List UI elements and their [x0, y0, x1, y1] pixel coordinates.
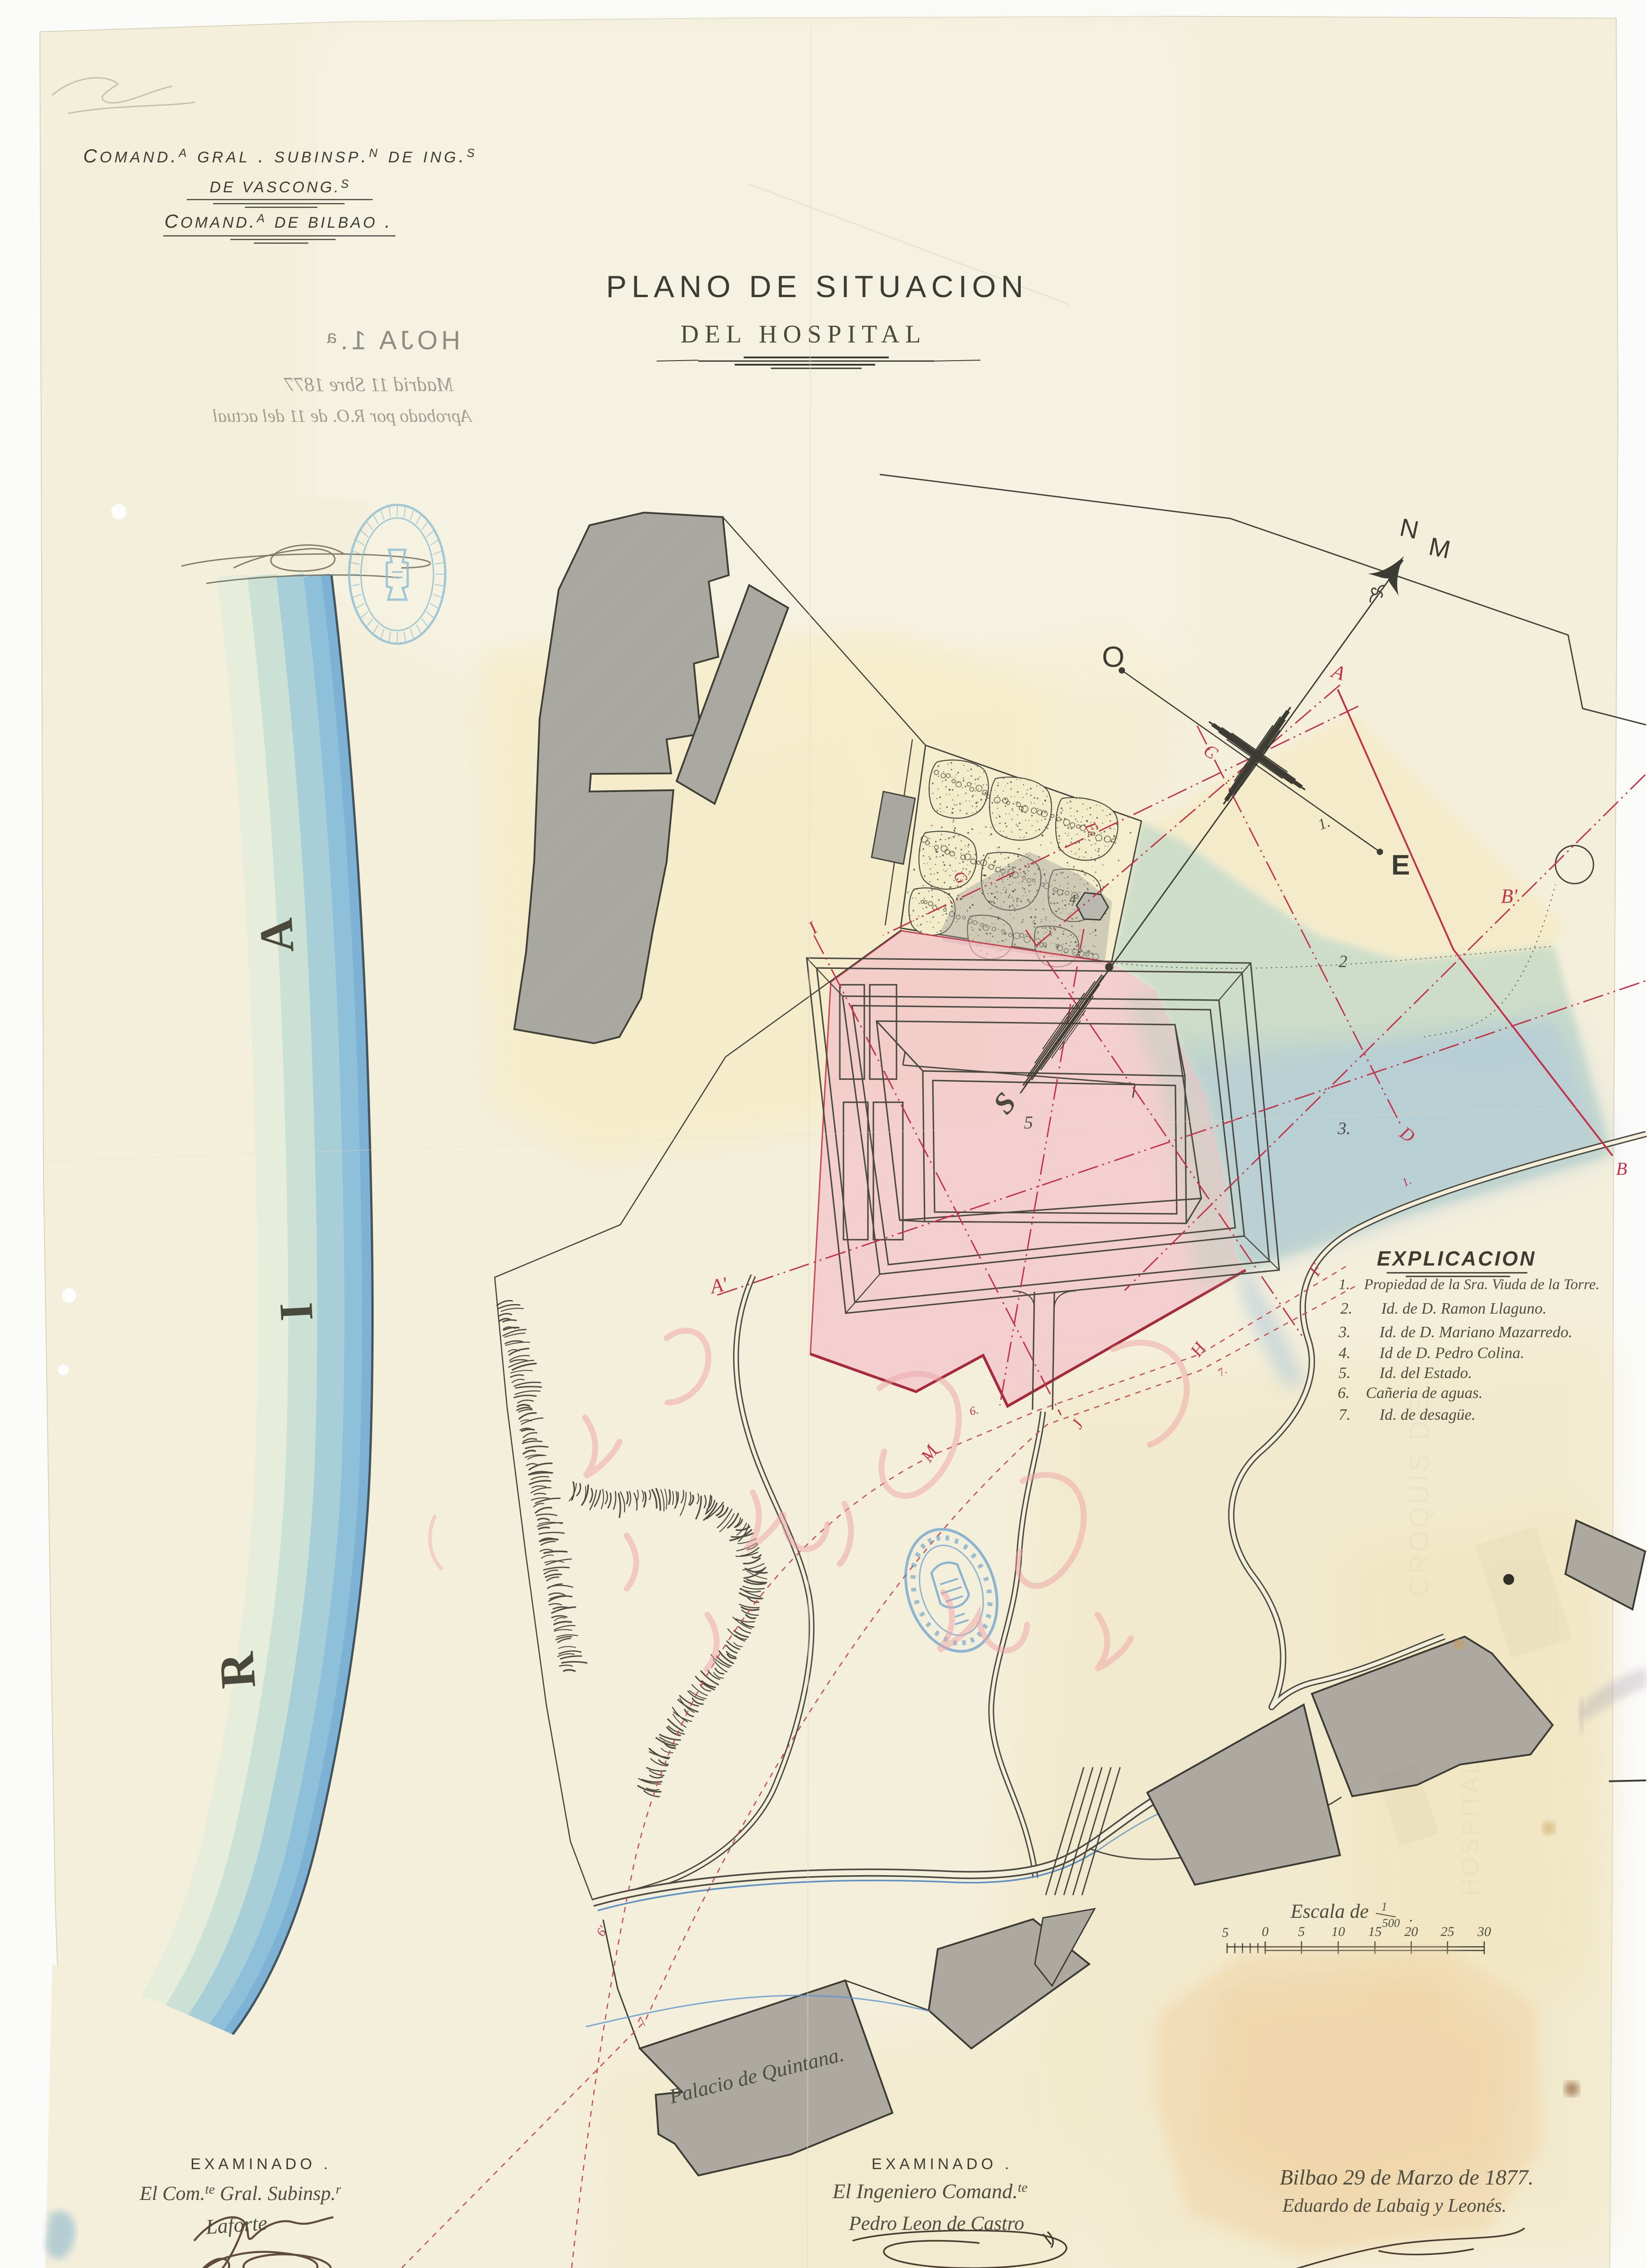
svg-text:El Com.te Gral. Subinsp.r: El Com.te Gral. Subinsp.r: [139, 2182, 341, 2204]
svg-text:15: 15: [1368, 1924, 1382, 1939]
svg-text:PLANO DE SITUACION: PLANO DE SITUACION: [606, 269, 1028, 304]
svg-text:1.: 1.: [1339, 1276, 1350, 1293]
svg-text:Laforte: Laforte: [205, 2211, 268, 2239]
svg-text:EXAMINADO .: EXAMINADO .: [190, 2156, 331, 2173]
svg-text:B': B': [1501, 885, 1518, 907]
svg-text:Id. de D. Ramon Llaguno.: Id. de D. Ramon Llaguno.: [1381, 1300, 1547, 1317]
svg-text:Escala de: Escala de: [1290, 1900, 1369, 1922]
svg-text:20: 20: [1404, 1924, 1418, 1939]
svg-text:EXPLICACION: EXPLICACION: [1377, 1247, 1536, 1270]
svg-text:5.: 5.: [1339, 1364, 1350, 1382]
svg-text:5: 5: [1298, 1924, 1305, 1939]
svg-text:6.: 6.: [1338, 1384, 1350, 1402]
svg-text:30: 30: [1477, 1924, 1491, 1939]
svg-text:3.: 3.: [1337, 1119, 1351, 1138]
svg-text:2.: 2.: [1340, 1300, 1352, 1317]
svg-text:El Ingeniero Comand.te: El Ingeniero Comand.te: [832, 2180, 1028, 2203]
svg-text:0: 0: [1262, 1924, 1269, 1939]
svg-text:EXAMINADO .: EXAMINADO .: [872, 2156, 1013, 2173]
svg-text:.: .: [1409, 1908, 1413, 1925]
svg-text:B: B: [1616, 1158, 1627, 1179]
svg-text:Id. de D. Mariano Mazarredo.: Id. de D. Mariano Mazarredo.: [1379, 1323, 1572, 1341]
svg-text:7.: 7.: [1339, 1406, 1350, 1423]
svg-text:COMAND.A DE BILBAO .: COMAND.A DE BILBAO .: [165, 210, 393, 232]
svg-text:Madrid 11 Sbre 1877: Madrid 11 Sbre 1877: [283, 373, 454, 396]
svg-text:3.: 3.: [1338, 1323, 1350, 1341]
svg-text:HOSPITAL: HOSPITAL: [1457, 1759, 1484, 1896]
svg-text:4.: 4.: [1339, 1344, 1350, 1362]
svg-text:DE VASCONG.S: DE VASCONG.S: [210, 177, 351, 196]
svg-text:10: 10: [1331, 1924, 1345, 1939]
svg-text:R: R: [208, 1650, 266, 1690]
svg-text:I: I: [269, 1301, 323, 1322]
svg-text:DEL HOSPITAL: DEL HOSPITAL: [681, 320, 927, 348]
svg-text:1: 1: [1381, 1900, 1387, 1913]
svg-text:Aprobado por R.O. de 11 del ac: Aprobado por R.O. de 11 del actual: [213, 406, 473, 426]
svg-text:25: 25: [1441, 1924, 1454, 1939]
svg-text:Id de D. Pedro Colina.: Id de D. Pedro Colina.: [1379, 1344, 1525, 1362]
svg-text:5: 5: [1024, 1112, 1033, 1133]
svg-text:O: O: [1102, 640, 1125, 673]
svg-text:HOJA 1.a: HOJA 1.a: [323, 326, 460, 355]
svg-text:500: 500: [1382, 1916, 1400, 1930]
svg-text:COMAND.A GRAL . SUBINSP.N DE I: COMAND.A GRAL . SUBINSP.N DE ING.S: [83, 145, 478, 166]
svg-text:Propiedad de la Sra. Viuda de: Propiedad de la Sra. Viuda de la Torre.: [1364, 1276, 1599, 1293]
svg-text:A: A: [249, 917, 304, 954]
svg-text:CROQUIS DEL: CROQUIS DEL: [1404, 1379, 1434, 1597]
svg-text:Id. del Estado.: Id. del Estado.: [1379, 1364, 1472, 1382]
svg-text:5: 5: [1222, 1925, 1229, 1940]
svg-text:4: 4: [1069, 892, 1076, 907]
svg-text:E: E: [1391, 850, 1410, 881]
svg-text:Bilbao 29 de Marzo de 1877.: Bilbao 29 de Marzo de 1877.: [1280, 2165, 1534, 2190]
svg-text:2: 2: [1339, 952, 1347, 971]
svg-text:Eduardo de Labaig y Leonés.: Eduardo de Labaig y Leonés.: [1282, 2195, 1506, 2216]
